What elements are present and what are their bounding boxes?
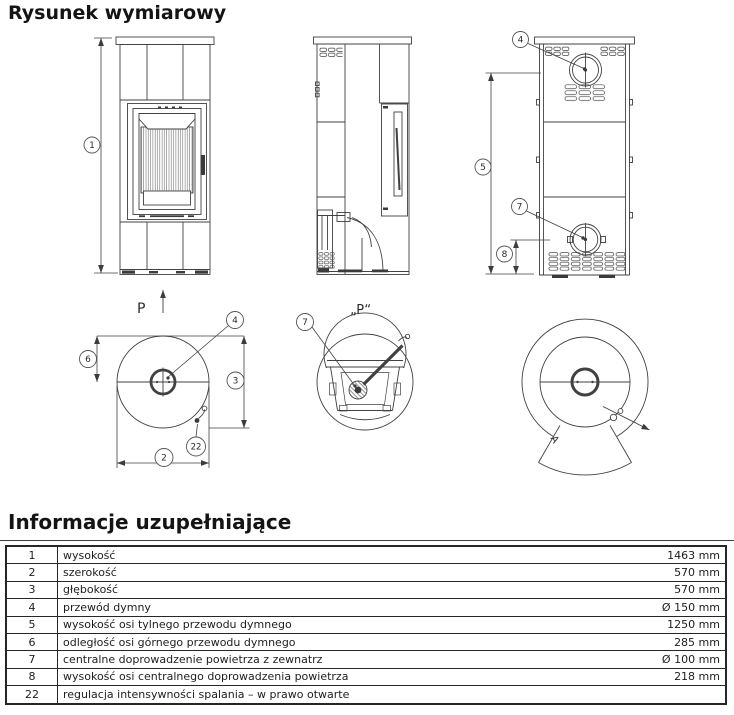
row-number: 5 bbox=[6, 616, 58, 633]
row-value: 1250 mm bbox=[667, 618, 720, 631]
table-row: 4 przewód dymnyØ 150 mm bbox=[6, 599, 726, 616]
row-label: wysokość bbox=[63, 549, 115, 562]
height-dimension bbox=[94, 38, 118, 273]
row-number: 6 bbox=[6, 633, 58, 650]
rear-vent-slots-top-right bbox=[601, 47, 626, 57]
row-value: 1463 mm bbox=[667, 549, 720, 562]
table-row: 6 odległość osi górnego przewodu dymnego… bbox=[6, 633, 726, 650]
rear-vent-slots-bottom bbox=[549, 252, 627, 271]
central-air-inlet bbox=[568, 223, 606, 257]
callout-22: 22 bbox=[187, 424, 206, 456]
manual-page: Rysunek wymiarowy bbox=[0, 0, 734, 715]
callout-8: 8 bbox=[497, 246, 513, 262]
callout-7-label: 7 bbox=[517, 203, 523, 213]
rear-flue-height-dimension bbox=[486, 73, 542, 274]
regulation-lever bbox=[364, 346, 403, 385]
row-number: 4 bbox=[6, 599, 58, 616]
air-duct-curve bbox=[347, 218, 383, 272]
svg-text:3: 3 bbox=[233, 377, 239, 387]
row-number: 22 bbox=[6, 686, 58, 704]
top-view-section: 7 bbox=[297, 313, 414, 430]
side-vent-slots bbox=[320, 48, 343, 58]
front-direction-label: P bbox=[137, 301, 145, 317]
row-label: wysokość osi tylnego przewodu dymnego bbox=[63, 618, 292, 631]
callout-3: 3 bbox=[227, 372, 244, 389]
section-marker-label: „P“ bbox=[350, 303, 371, 318]
callout-7-rear: 7 bbox=[512, 199, 585, 240]
callout-4-top: 4 bbox=[166, 312, 243, 380]
row-value: 285 mm bbox=[674, 636, 720, 649]
heading-divider bbox=[0, 540, 734, 541]
rotation-arc bbox=[539, 463, 632, 475]
callout-8-label: 8 bbox=[502, 250, 508, 260]
door-handle bbox=[201, 155, 206, 175]
table-row: 7 centralne doprowadzenie powietrza z ze… bbox=[6, 651, 726, 668]
row-value: Ø 100 mm bbox=[662, 653, 720, 666]
info-heading: Informacje uzupełniające bbox=[8, 510, 291, 534]
callout-5-label: 5 bbox=[480, 163, 486, 173]
svg-text:7: 7 bbox=[302, 318, 308, 328]
table-row: 8 wysokość osi centralnego doprowadzenia… bbox=[6, 668, 726, 685]
table-row: 5 wysokość osi tylnego przewodu dymnego1… bbox=[6, 616, 726, 633]
svg-text:6: 6 bbox=[85, 355, 91, 365]
table-row: 22 regulacja intensywności spalania – w … bbox=[6, 686, 726, 704]
row-label: przewód dymny bbox=[63, 601, 151, 614]
callout-1: 1 bbox=[84, 137, 100, 153]
svg-text:4: 4 bbox=[232, 316, 238, 326]
table-row: 2 szerokość570 mm bbox=[6, 564, 726, 581]
row-number: 8 bbox=[6, 668, 58, 685]
callout-1-label: 1 bbox=[89, 141, 95, 151]
callout-2: 2 bbox=[155, 449, 173, 467]
row-number: 7 bbox=[6, 651, 58, 668]
side-bottom-slots bbox=[319, 252, 336, 269]
callout-5: 5 bbox=[475, 159, 491, 175]
stove-door bbox=[128, 104, 207, 220]
row-number: 2 bbox=[6, 564, 58, 581]
rotation-knob bbox=[603, 407, 650, 431]
rear-vent-slots-mid bbox=[565, 84, 607, 102]
row-number: 3 bbox=[6, 581, 58, 598]
row-value: 570 mm bbox=[674, 583, 720, 596]
table-row: 1 wysokość1463 mm bbox=[6, 546, 726, 564]
side-view: „P“ bbox=[314, 37, 412, 318]
row-label: odległość osi górnego przewodu dymnego bbox=[63, 636, 296, 649]
info-table: 1 wysokość1463 mm 2 szerokość570 mm 3 gł… bbox=[5, 545, 727, 705]
row-number: 1 bbox=[6, 546, 58, 564]
callout-6: 6 bbox=[80, 351, 97, 368]
front-view: 1 P bbox=[84, 37, 214, 317]
row-label: wysokość osi centralnego doprowadzenia p… bbox=[63, 670, 348, 683]
row-label: centralne doprowadzenie powietrza z zewn… bbox=[63, 653, 322, 666]
svg-text:22: 22 bbox=[191, 443, 202, 453]
row-value: 218 mm bbox=[674, 670, 720, 683]
door-glass bbox=[141, 127, 193, 193]
row-value: 570 mm bbox=[674, 566, 720, 579]
callout-4-label: 4 bbox=[518, 36, 524, 46]
row-label: głębokość bbox=[63, 583, 118, 596]
top-view-rotation: A bbox=[522, 319, 650, 475]
top-view-dimensions: 4 6 3 bbox=[80, 312, 250, 469]
row-label: regulacja intensywności spalania – w pra… bbox=[63, 688, 349, 701]
table-row: 3 głębokość570 mm bbox=[6, 581, 726, 598]
row-value: Ø 150 mm bbox=[662, 601, 720, 614]
svg-text:2: 2 bbox=[161, 454, 167, 464]
rear-view: 4 5 7 bbox=[475, 32, 635, 279]
row-label: szerokość bbox=[63, 566, 117, 579]
dimensional-drawing: 1 P bbox=[0, 0, 734, 512]
air-inlet-height-dimension bbox=[511, 240, 551, 274]
callout-7-section: 7 bbox=[297, 314, 357, 388]
rear-vent-slots-top-left bbox=[545, 47, 570, 57]
